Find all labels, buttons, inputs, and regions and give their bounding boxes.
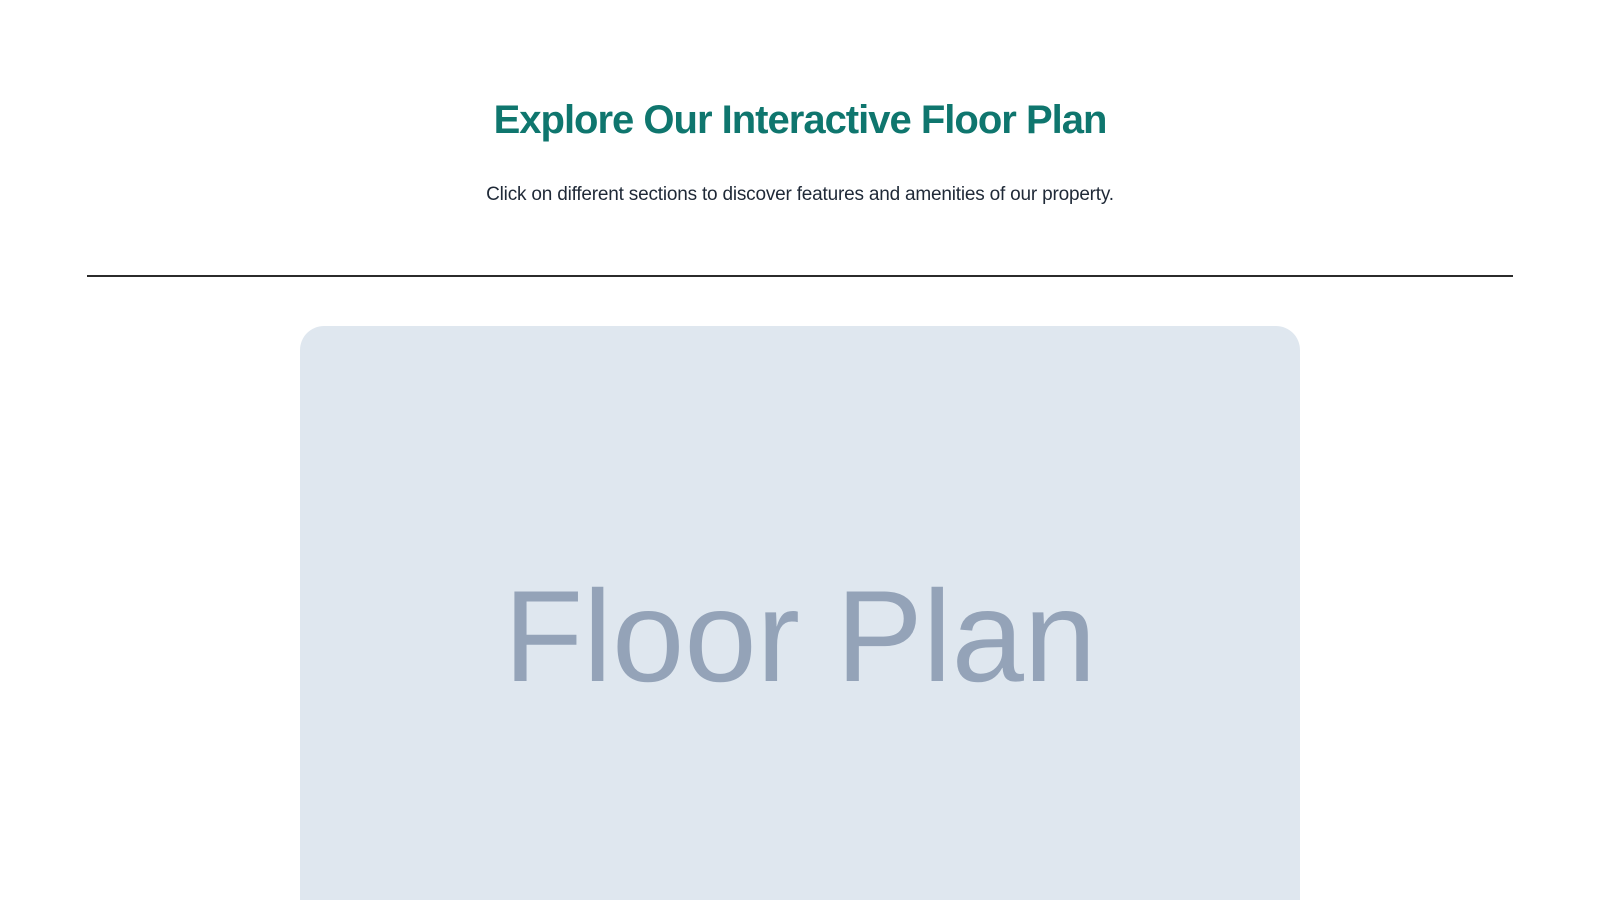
floor-plan-section: Explore Our Interactive Floor Plan Click… xyxy=(0,0,1600,207)
interactive-floor-plan-panel[interactable]: Floor Plan xyxy=(300,326,1300,900)
page-title: Explore Our Interactive Floor Plan xyxy=(0,0,1600,144)
floor-plan-placeholder-label: Floor Plan xyxy=(504,561,1097,711)
section-divider xyxy=(87,275,1513,277)
page-subtitle: Click on different sections to discover … xyxy=(0,184,1600,207)
